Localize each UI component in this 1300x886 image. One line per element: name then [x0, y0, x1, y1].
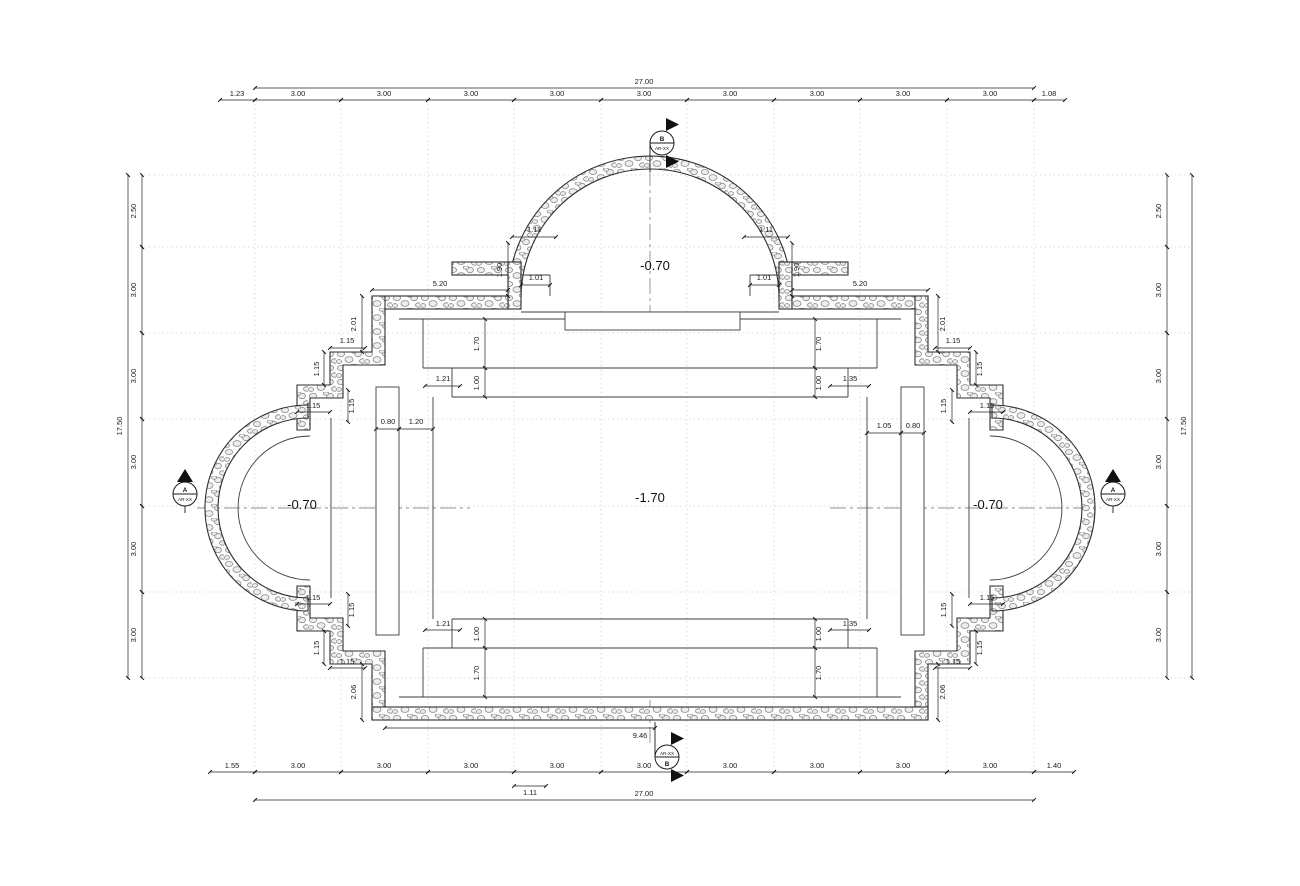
dim-label: 1.70 — [472, 666, 481, 681]
dim-label: 1.15 — [306, 593, 321, 602]
section-arrow-icon — [671, 769, 684, 782]
dim-label: 1.05 — [877, 421, 892, 430]
dim-label: 1.21 — [436, 619, 451, 628]
dim-label: 3.00 — [723, 89, 738, 98]
dim-label: 1.23 — [230, 89, 245, 98]
section-sheet: AR-XX — [655, 146, 669, 151]
dim-label: 1.90 — [495, 263, 504, 278]
dim-label: 1.70 — [814, 666, 823, 681]
floor-plan-page: 27.00 1.23 3.00 3.00 3.00 3.00 3.00 3.00… — [0, 0, 1300, 886]
top-dimension-row: 27.00 1.23 3.00 3.00 3.00 3.00 3.00 3.00… — [220, 77, 1065, 100]
dim-label: 0.80 — [906, 421, 921, 430]
dim-label: 17.50 — [1179, 417, 1188, 436]
elevation-label-left-apse: -0.70 — [287, 497, 317, 512]
top-apse-pier-right — [779, 262, 792, 309]
section-arrow-icon — [177, 469, 193, 482]
dim-label: 1.11 — [527, 225, 541, 234]
dim-label: 1.15 — [340, 657, 355, 666]
dim-label: 1.15 — [312, 641, 321, 656]
dim-label: 2.06 — [349, 685, 358, 700]
dim-label: 27.00 — [635, 77, 654, 86]
dim-label: 5.20 — [853, 279, 868, 288]
dim-label: 3.00 — [550, 89, 565, 98]
elevation-label-top-apse: -0.70 — [640, 258, 670, 273]
dim-label: 3.00 — [129, 628, 138, 643]
dim-label: 1.15 — [980, 593, 995, 602]
section-letter: A — [183, 487, 188, 494]
dim-label: 1.01 — [757, 273, 772, 282]
dim-label: 1.20 — [409, 417, 424, 426]
dim-label: 1.00 — [814, 627, 823, 642]
section-letter: B — [660, 136, 665, 143]
dim-label: 3.00 — [723, 761, 738, 770]
dim-label: 1.15 — [975, 362, 984, 377]
dim-label: 3.00 — [550, 761, 565, 770]
right-dimension-column: 17.50 2.50 3.00 3.00 3.00 3.00 3.00 — [1154, 175, 1192, 678]
dim-label: 3.00 — [1154, 628, 1163, 643]
dim-label: 3.00 — [1154, 455, 1163, 470]
dim-label: 3.00 — [810, 89, 825, 98]
dim-label: 1.70 — [472, 337, 481, 352]
step-wall-bottom-left — [297, 586, 385, 720]
dim-label: 1.55 — [225, 761, 240, 770]
dim-label: 3.00 — [129, 455, 138, 470]
dim-label: 3.00 — [291, 761, 306, 770]
dim-label: 5.20 — [433, 279, 448, 288]
bottom-wall — [372, 707, 928, 720]
dim-label: 3.00 — [896, 89, 911, 98]
dim-label: 1.40 — [1047, 761, 1062, 770]
dim-label: 1.01 — [529, 273, 544, 282]
dim-label: 1.21 — [436, 374, 451, 383]
section-sheet: AR-XX — [1106, 497, 1120, 502]
dim-label: 3.00 — [377, 89, 392, 98]
dim-label: 0.80 — [381, 417, 396, 426]
dim-label: 1.90 — [792, 263, 801, 278]
section-letter: B — [665, 761, 670, 768]
dim-label: 3.00 — [464, 89, 479, 98]
dim-label: 1.15 — [939, 399, 948, 414]
dim-label: 1.15 — [306, 401, 321, 410]
dim-label: 3.00 — [129, 369, 138, 384]
section-arrow-icon — [666, 118, 679, 131]
dim-label: 1.15 — [980, 401, 995, 410]
dim-label: 3.00 — [291, 89, 306, 98]
dim-label: 1.15 — [946, 657, 961, 666]
dim-label: 2.01 — [349, 317, 358, 332]
dim-label: 1.15 — [347, 399, 356, 414]
section-marker-a-left: A AR-XX — [173, 469, 197, 513]
dim-label: 9.46 — [633, 731, 648, 740]
dim-label: 3.00 — [983, 761, 998, 770]
dim-label: 1.15 — [939, 603, 948, 618]
section-letter: A — [1111, 487, 1116, 494]
apse-threshold-step — [565, 312, 740, 330]
dim-label: 2.50 — [1154, 204, 1163, 219]
left-dimension-column: 17.50 2.50 3.00 3.00 3.00 3.00 3.00 — [115, 175, 142, 678]
step-wall-bottom-right — [915, 586, 1003, 720]
dim-label: 1.08 — [1042, 89, 1057, 98]
dim-label: 1.15 — [975, 641, 984, 656]
dim-label: 2.06 — [938, 685, 947, 700]
dim-label: 3.00 — [464, 761, 479, 770]
floor-plan-drawing: 27.00 1.23 3.00 3.00 3.00 3.00 3.00 3.00… — [0, 0, 1300, 886]
dim-label: 1.15 — [347, 603, 356, 618]
dim-label: 1.15 — [946, 336, 961, 345]
dim-label: 1.11 — [759, 225, 773, 234]
dim-label: 3.00 — [1154, 283, 1163, 298]
dim-label: 3.00 — [637, 761, 652, 770]
dim-label: 1.00 — [472, 627, 481, 642]
section-marker-b-bottom: AR-XX B — [655, 722, 684, 782]
elevation-label-hall: -1.70 — [635, 490, 665, 505]
dim-label: 3.00 — [1154, 369, 1163, 384]
bottom-dimension-row: 1.55 3.00 3.00 3.00 3.00 3.00 3.00 3.00 … — [210, 761, 1074, 800]
dim-label: 2.01 — [938, 317, 947, 332]
dim-label: 1.00 — [472, 376, 481, 391]
dim-label: 1.11 — [523, 788, 537, 797]
dim-label: 3.00 — [896, 761, 911, 770]
top-apse-pier-left — [508, 262, 521, 309]
dim-label: 3.00 — [377, 761, 392, 770]
top-wall-left — [372, 296, 508, 309]
section-marker-a-right: A AR-XX — [1101, 469, 1125, 513]
exterior-walls — [205, 156, 1095, 720]
dim-label: 1.15 — [312, 362, 321, 377]
dim-label: 2.50 — [129, 204, 138, 219]
dim-label: 3.00 — [129, 283, 138, 298]
section-arrow-icon — [671, 732, 684, 745]
dim-label: 1.00 — [814, 376, 823, 391]
dim-label: 3.00 — [983, 89, 998, 98]
dim-label: 3.00 — [810, 761, 825, 770]
dim-label: 27.00 — [635, 789, 654, 798]
dim-label: 3.00 — [1154, 542, 1163, 557]
dim-label: 3.00 — [129, 542, 138, 557]
section-arrow-icon — [1105, 469, 1121, 482]
dim-label: 17.50 — [115, 417, 124, 436]
section-sheet: AR-XX — [660, 751, 674, 756]
interior-lines — [238, 275, 1062, 697]
dim-label: 1.35 — [843, 374, 858, 383]
dim-label: 1.70 — [814, 337, 823, 352]
dim-label: 1.35 — [843, 619, 858, 628]
top-wall-right — [792, 296, 928, 309]
elevation-label-right-apse: -0.70 — [973, 497, 1003, 512]
dim-label: 1.15 — [340, 336, 355, 345]
section-sheet: AR-XX — [178, 497, 192, 502]
dim-label: 3.00 — [637, 89, 652, 98]
